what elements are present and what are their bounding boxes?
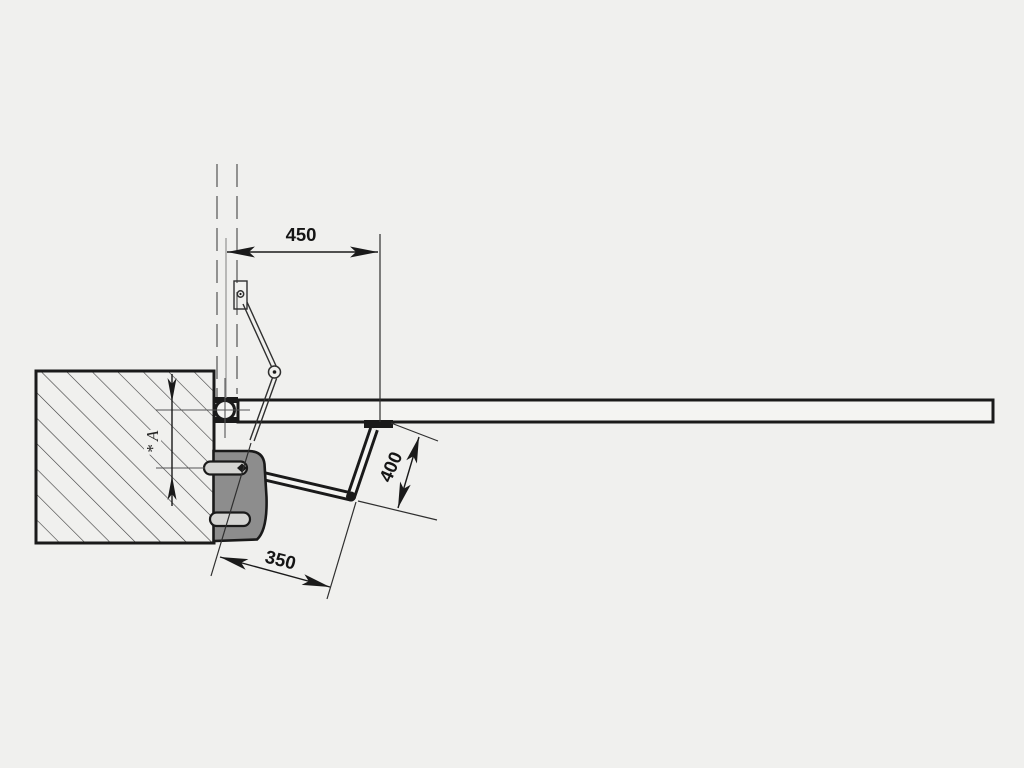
open-arm-bracket-pivot-dot xyxy=(239,293,241,295)
installation-diagram: 450 400 350 * A xyxy=(0,0,1024,768)
gate-leaf xyxy=(238,400,993,422)
wall-hatch xyxy=(36,371,214,543)
dim-A-label: * A xyxy=(143,430,162,453)
arm-elbow-joint xyxy=(346,492,356,502)
gate-bracket xyxy=(364,420,393,428)
wall-post-section xyxy=(36,371,214,543)
dim-450-label: 450 xyxy=(286,224,317,245)
open-arm-elbow-dot xyxy=(273,370,277,374)
